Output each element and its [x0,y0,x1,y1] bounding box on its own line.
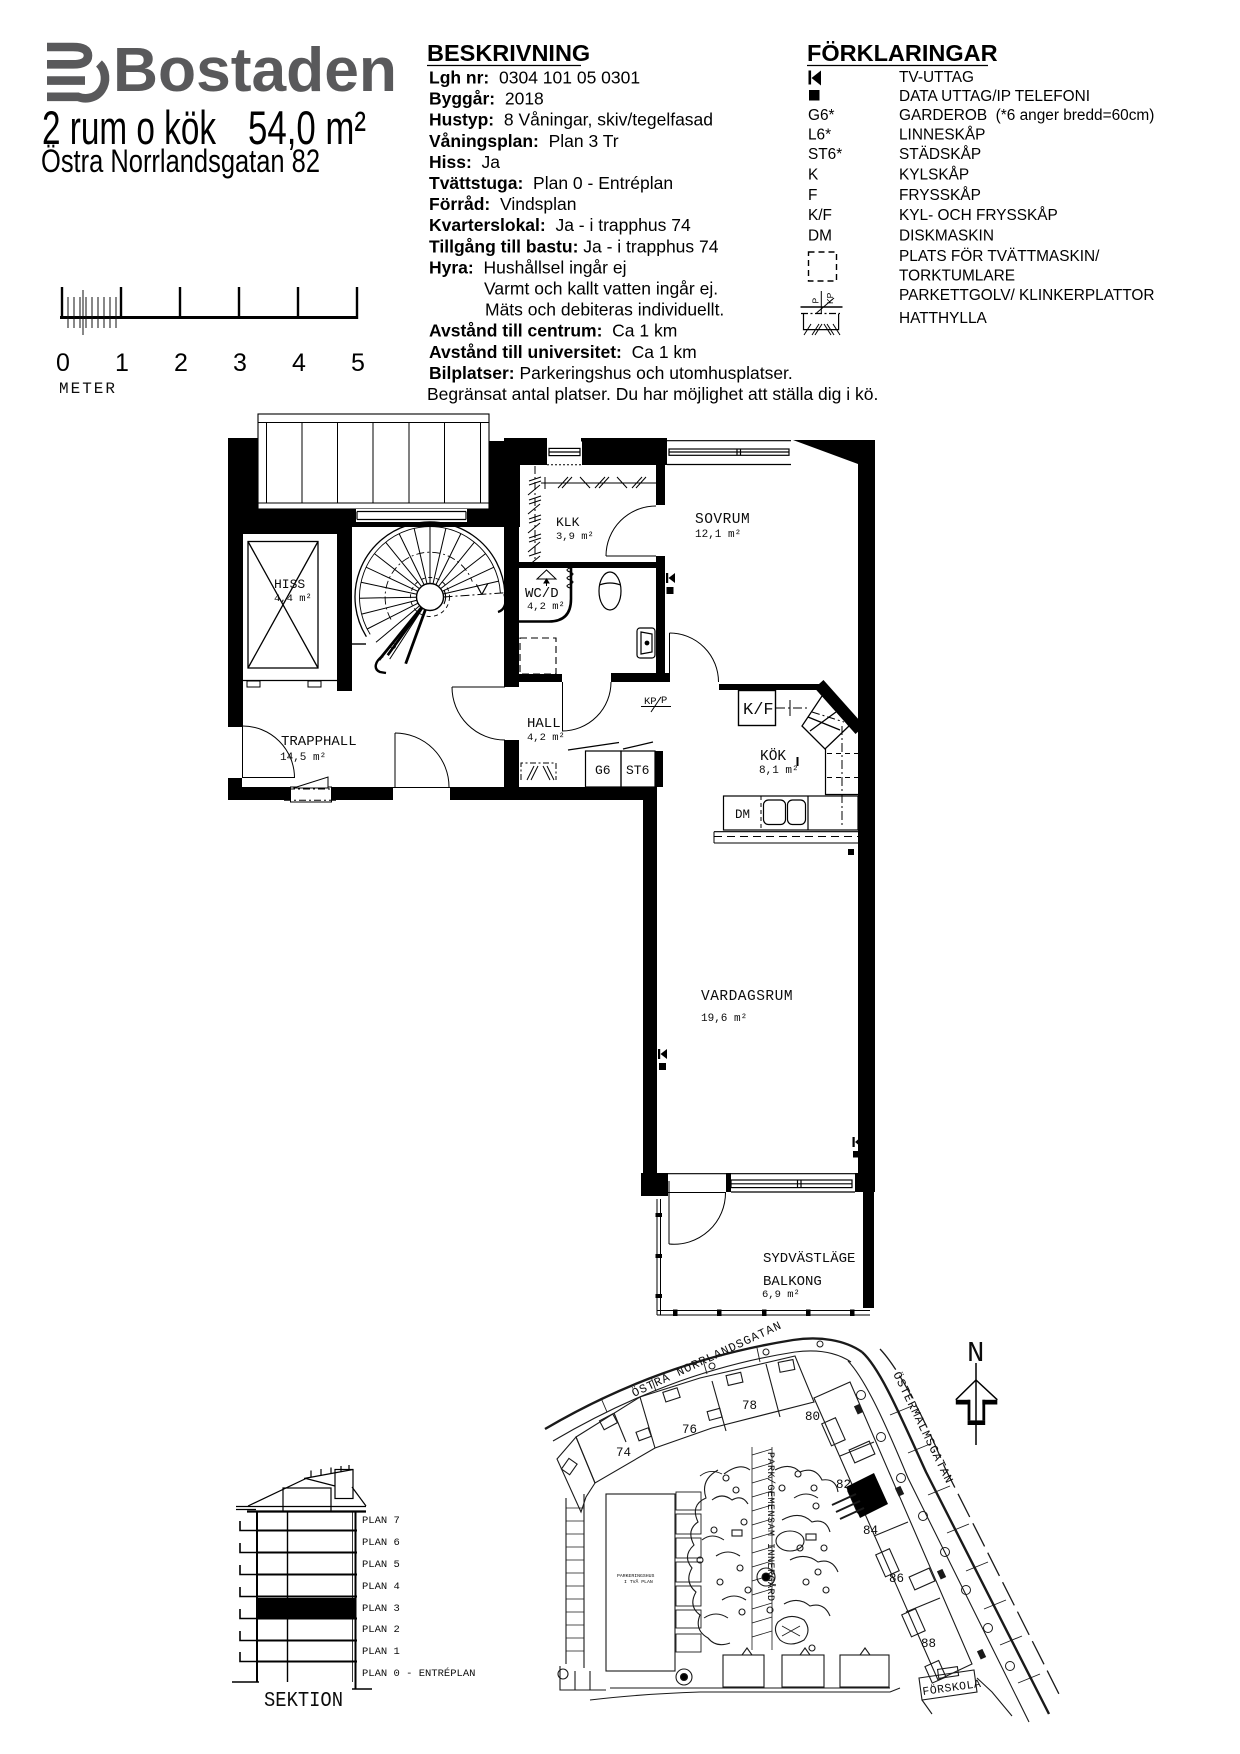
svg-text:Hyra: Hushållsel ingår ej: Hyra: Hushållsel ingår ej [429,257,626,277]
svg-text:PLAN 6: PLAN 6 [362,1537,400,1549]
svg-text:4,2 m²: 4,2 m² [527,601,565,613]
svg-text:WC/D: WC/D [525,586,559,602]
svg-text:PLAN 7: PLAN 7 [362,1515,400,1527]
svg-text:PLAN 0 - ENTRÉPLAN: PLAN 0 - ENTRÉPLAN [362,1666,475,1680]
svg-text:LINNESKÅP: LINNESKÅP [899,127,985,144]
svg-text:KÖK: KÖK [760,747,786,765]
svg-text:BALKONG: BALKONG [763,1274,822,1290]
svg-text:G6: G6 [595,763,611,778]
svg-text:I TVÅ PLAN: I TVÅ PLAN [624,1578,653,1585]
svg-text:DM: DM [808,228,832,245]
svg-text:STÄDSKÅP: STÄDSKÅP [899,146,981,163]
svg-text:Begränsat antal platser. Du ha: Begränsat antal platser. Du har möjlighe… [427,384,878,404]
svg-text:3,9 m²: 3,9 m² [556,531,594,543]
svg-text:PLAN 2: PLAN 2 [362,1624,400,1636]
svg-text:Mäts och debiteras individuell: Mäts och debiteras individuellt. [485,300,724,320]
svg-text:P: P [661,695,667,707]
svg-text:Våningsplan: Plan 3 Tr: Våningsplan: Plan 3 Tr [429,131,619,151]
svg-text:HALL: HALL [527,716,561,732]
svg-text:Byggår: 2018: Byggår: 2018 [429,89,544,109]
svg-text:KP: KP [825,292,835,304]
svg-text:Tvättstuga: Plan 0 - Entrépla: Tvättstuga: Plan 0 - Entréplan [429,173,673,193]
svg-text:PARKETTGOLV/ KLINKERPLATTOR: PARKETTGOLV/ KLINKERPLATTOR [899,287,1154,304]
svg-text:KYLSKÅP: KYLSKÅP [899,167,969,184]
svg-text:84: 84 [863,1524,878,1538]
svg-text:ST6: ST6 [626,763,649,778]
svg-text:Östra Norrlandsgatan 82: Östra Norrlandsgatan 82 [41,143,320,179]
svg-text:G6*: G6* [808,107,835,124]
svg-text:GARDEROB (*6 anger bredd=60cm: GARDEROB (*6 anger bredd=60cm) [899,107,1154,124]
svg-text:5: 5 [351,349,365,377]
svg-text:SEKTION: SEKTION [264,1690,343,1713]
svg-text:VARDAGSRUM: VARDAGSRUM [701,989,793,1005]
svg-text:METER: METER [59,380,117,398]
svg-text:TV-UTTAG: TV-UTTAG [899,69,974,86]
svg-text:Avstånd till centrum: Ca 1 km: Avstånd till centrum: Ca 1 km [429,321,677,341]
svg-text:P: P [811,298,821,304]
svg-text:PLAN 3: PLAN 3 [362,1603,400,1615]
svg-text:12,1 m²: 12,1 m² [695,529,741,541]
svg-text:PLAN 4: PLAN 4 [362,1581,400,1593]
svg-text:Hiss: Ja: Hiss: Ja [429,152,500,172]
svg-text:Lgh nr: 0304 101 05 0301: Lgh nr: 0304 101 05 0301 [429,68,640,88]
svg-text:Bostaden: Bostaden [113,36,397,105]
svg-text:80: 80 [805,1410,820,1424]
svg-text:0: 0 [56,349,70,377]
svg-text:KYL- OCH FRYSSKÅP: KYL- OCH FRYSSKÅP [899,207,1058,224]
svg-text:Tillgång till bastu: Ja - i tr: Tillgång till bastu: Ja - i trapphus 74 [429,236,719,256]
svg-text:19,6 m²: 19,6 m² [701,1013,747,1025]
svg-text:TRAPPHALL: TRAPPHALL [281,734,357,750]
svg-text:K: K [808,167,819,184]
svg-text:74: 74 [616,1446,631,1460]
svg-text:F: F [808,187,817,204]
svg-text:3: 3 [233,349,247,377]
svg-text:78: 78 [742,1399,757,1413]
svg-text:Bilplatser: Parkeringshus och: Bilplatser: Parkeringshus och utomhuspla… [429,363,793,383]
svg-text:K/F: K/F [743,701,774,720]
svg-text:Avstånd till universitet: Ca: Avstånd till universitet: Ca 1 km [429,342,697,362]
svg-text:86: 86 [889,1572,904,1586]
svg-text:PARKERINGSHUS: PARKERINGSHUS [617,1573,655,1579]
svg-text:Hustyp: 8 Våningar, skiv/tege: Hustyp: 8 Våningar, skiv/tegelfasad [429,110,713,130]
svg-text:SOVRUM: SOVRUM [695,512,750,528]
svg-text:Varmt och kallt vatten ingår e: Varmt och kallt vatten ingår ej. [484,279,718,299]
svg-text:KP: KP [644,696,657,708]
svg-text:76: 76 [682,1423,697,1437]
svg-text:DISKMASKIN: DISKMASKIN [899,228,994,245]
svg-text:BESKRIVNING: BESKRIVNING [427,40,590,66]
svg-text:Förråd: Vindsplan: Förråd: Vindsplan [429,194,577,214]
svg-text:6,9 m²: 6,9 m² [762,1289,800,1301]
svg-text:HATTHYLLA: HATTHYLLA [899,310,988,327]
svg-text:PLAN 1: PLAN 1 [362,1646,400,1658]
svg-text:Kvarterslokal: Ja - i trapphu: Kvarterslokal: Ja - i trapphus 74 [429,215,691,235]
svg-text:4,4 m²: 4,4 m² [274,593,312,605]
svg-text:PLAN 5: PLAN 5 [362,1559,400,1571]
svg-text:L6*: L6* [808,127,831,144]
svg-text:DM: DM [735,808,750,822]
svg-text:14,5 m²: 14,5 m² [280,752,326,764]
svg-text:FÖRKLARINGAR: FÖRKLARINGAR [807,40,998,66]
svg-text:8,1 m²: 8,1 m² [759,765,799,777]
svg-text:FRYSSKÅP: FRYSSKÅP [899,187,981,204]
svg-text:82: 82 [836,1478,851,1492]
svg-text:2: 2 [174,349,188,377]
svg-text:PARK/GEMENSAM INNERGÅRD: PARK/GEMENSAM INNERGÅRD [764,1452,777,1602]
svg-text:SYDVÄSTLÄGE: SYDVÄSTLÄGE [763,1249,855,1267]
svg-text:K/F: K/F [808,207,832,224]
svg-text:1: 1 [115,349,129,377]
svg-text:KLK: KLK [556,515,580,530]
svg-text:TORKTUMLARE: TORKTUMLARE [899,268,1015,285]
svg-text:4,2 m²: 4,2 m² [527,732,565,744]
svg-text:4: 4 [292,349,306,377]
svg-text:PLATS FÖR TVÄTTMASKIN/: PLATS FÖR TVÄTTMASKIN/ [899,247,1100,265]
svg-text:88: 88 [921,1637,936,1651]
svg-text:HISS: HISS [274,577,305,592]
svg-text:ST6*: ST6* [808,146,842,163]
svg-text:DATA UTTAG/IP TELEFONI: DATA UTTAG/IP TELEFONI [899,88,1090,105]
